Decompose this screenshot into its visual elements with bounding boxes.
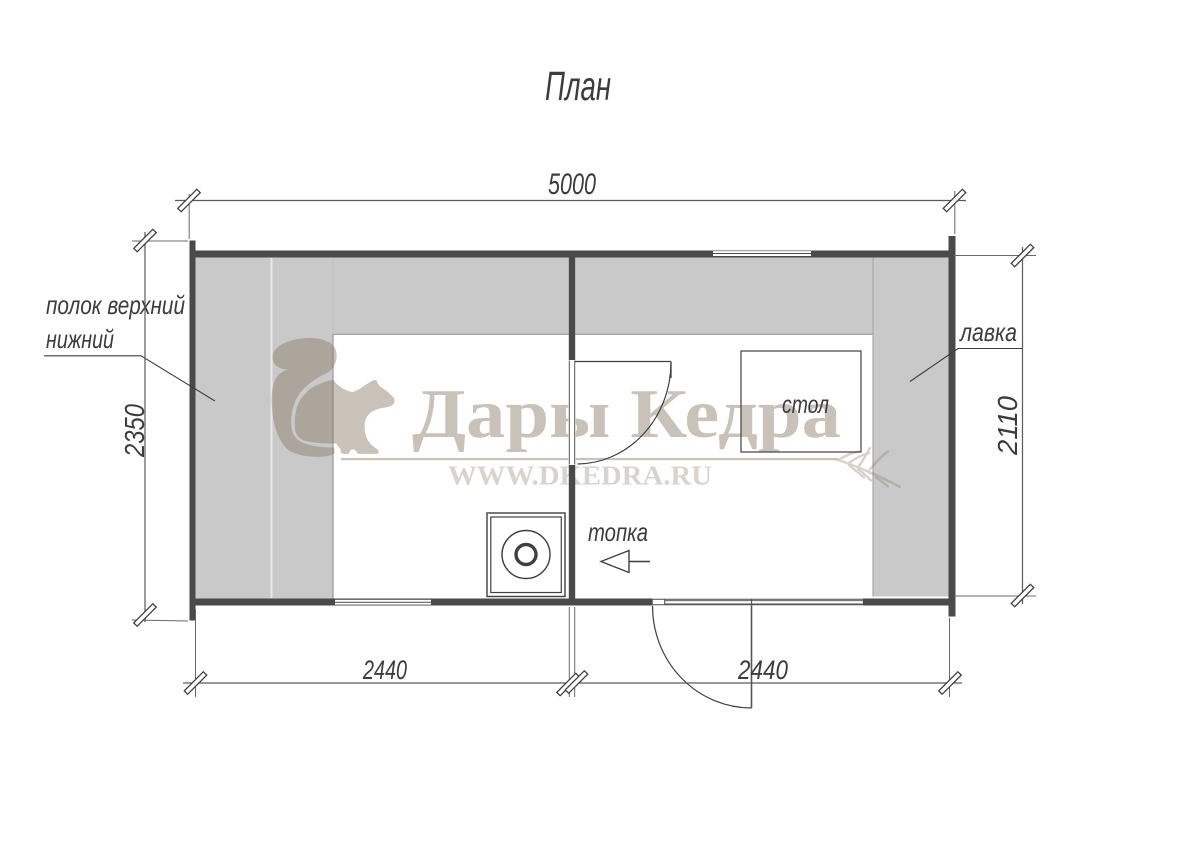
svg-text:Дары Кедра: Дары Кедра xyxy=(412,376,841,453)
svg-text:полок верхний: полок верхний xyxy=(46,290,185,320)
svg-text:стол: стол xyxy=(782,391,829,419)
svg-text:5000: 5000 xyxy=(548,168,596,201)
svg-text:План: План xyxy=(545,63,611,109)
svg-text:2350: 2350 xyxy=(119,404,150,458)
svg-text:2440: 2440 xyxy=(737,655,788,685)
svg-text:лавка: лавка xyxy=(958,317,1017,347)
svg-text:2440: 2440 xyxy=(362,655,407,685)
svg-text:2110: 2110 xyxy=(992,396,1023,456)
svg-text:WWW.DKEDRA.RU: WWW.DKEDRA.RU xyxy=(448,461,712,491)
svg-text:нижний: нижний xyxy=(46,324,114,354)
svg-text:топка: топка xyxy=(588,517,648,547)
